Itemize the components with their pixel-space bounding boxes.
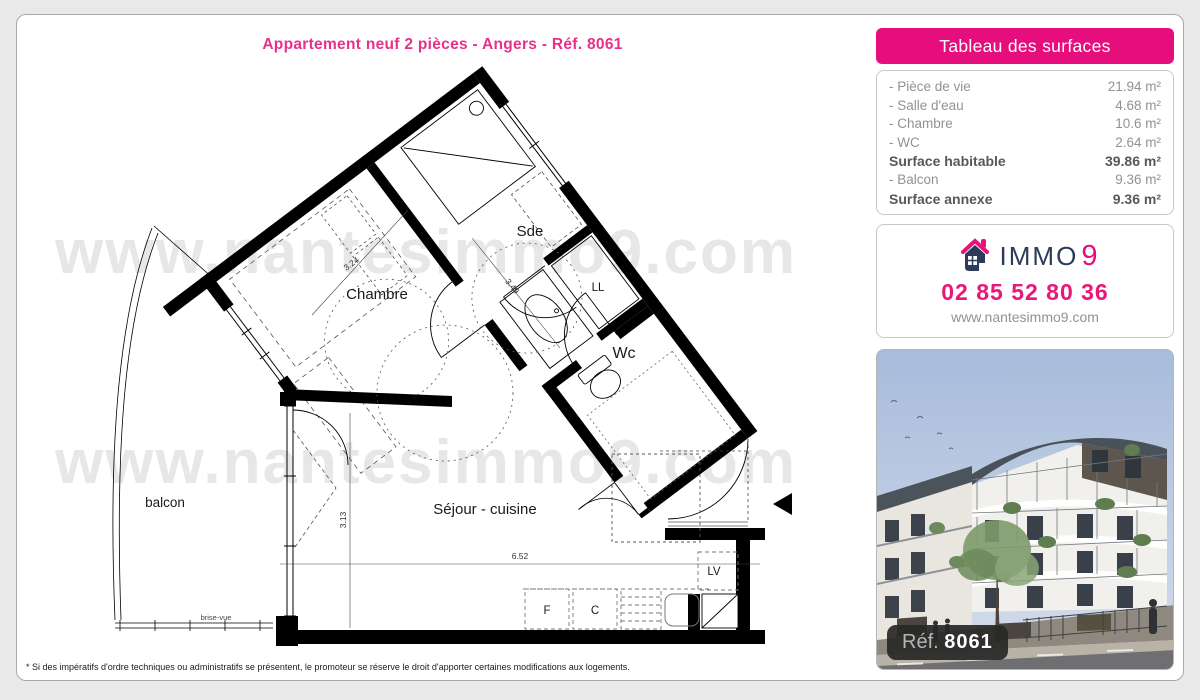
surface-row-value: 9.36 m² xyxy=(1115,171,1161,190)
side-panel: Tableau des surfaces - Pièce de vie 21.9… xyxy=(876,28,1174,670)
brand-logo: IMMO9 xyxy=(877,237,1173,275)
rotated-block xyxy=(163,66,757,658)
entry-closet xyxy=(702,594,738,628)
surface-row-value: 10.6 m² xyxy=(1115,115,1161,134)
shower xyxy=(401,90,535,224)
room-label-sde: Sde xyxy=(517,223,544,240)
surface-row: - Pièce de vie 21.94 m² xyxy=(889,78,1161,97)
surface-row-label: Surface annexe xyxy=(889,190,993,209)
contact-card: IMMO9 02 85 52 80 36 www.nantesimmo9.com xyxy=(876,224,1174,338)
surface-row-label: - Chambre xyxy=(889,115,953,134)
walls xyxy=(163,66,757,658)
surface-table: - Pièce de vie 21.94 m² - Salle d'eau 4.… xyxy=(876,70,1174,215)
dim-living-width: 6.52 xyxy=(512,551,529,561)
room-label-sejour: Séjour - cuisine xyxy=(433,501,536,518)
surface-row: - Balcon 9.36 m² xyxy=(889,171,1161,190)
rear-building xyxy=(877,466,972,640)
room-label-chambre: Chambre xyxy=(346,286,408,303)
surface-row-value: 39.86 m² xyxy=(1105,152,1161,171)
surface-row-label: - Pièce de vie xyxy=(889,78,971,97)
ref-badge-label: Réf. xyxy=(902,631,939,653)
phone-number: 02 85 52 80 36 xyxy=(877,279,1173,306)
room-label-wc: Wc xyxy=(612,345,635,362)
brand-9: 9 xyxy=(1081,240,1097,273)
surface-row-label: - Balcon xyxy=(889,171,939,190)
room-label-balcon: balcon xyxy=(145,495,185,510)
building-render xyxy=(877,350,1174,670)
surface-row-label: - WC xyxy=(889,134,920,153)
floor-plan-drawing: www.nantesimmo9.com www.nantesimmo9.com xyxy=(20,58,865,658)
disclaimer-text: * Si des impératifs d'ordre techniques o… xyxy=(26,662,630,672)
label-fridge: F xyxy=(543,605,550,617)
ref-badge-number: 8061 xyxy=(944,631,993,653)
surface-row-value: 21.94 m² xyxy=(1108,78,1161,97)
brand-immo: IMMO xyxy=(1000,241,1079,272)
label-brise-vue: brise-vue xyxy=(201,613,232,622)
floor-plan: www.nantesimmo9.com www.nantesimmo9.com xyxy=(20,58,865,658)
watermark-text: www.nantesimmo9.com xyxy=(54,428,795,497)
house-logo-icon xyxy=(953,237,997,275)
building-photo: Réf. 8061 xyxy=(876,349,1174,670)
surface-row: - Chambre 10.6 m² xyxy=(889,115,1161,134)
dim-living-height: 3.13 xyxy=(338,511,348,528)
page-title: Appartement neuf 2 pièces - Angers - Réf… xyxy=(20,36,865,54)
toilet xyxy=(577,355,626,405)
watermark-text: www.nantesimmo9.com xyxy=(54,218,795,287)
surface-row-value: 4.68 m² xyxy=(1115,97,1161,116)
surface-row-value: 9.36 m² xyxy=(1113,190,1161,209)
label-cooking: C xyxy=(591,605,599,617)
surface-row: - Salle d'eau 4.68 m² xyxy=(889,97,1161,116)
surface-row-label: Surface habitable xyxy=(889,152,1006,171)
surface-row-label: - Salle d'eau xyxy=(889,97,964,116)
surface-row: - WC 2.64 m² xyxy=(889,134,1161,153)
label-lv: LV xyxy=(707,566,721,578)
surface-row-value: 2.64 m² xyxy=(1115,134,1161,153)
surface-row: Surface annexe 9.36 m² xyxy=(889,190,1161,209)
ref-badge: Réf. 8061 xyxy=(887,625,1008,660)
room-label-ll: LL xyxy=(592,282,605,294)
website-url: www.nantesimmo9.com xyxy=(877,309,1173,325)
surface-table-header: Tableau des surfaces xyxy=(876,28,1174,64)
surface-row: Surface habitable 39.86 m² xyxy=(889,152,1161,171)
